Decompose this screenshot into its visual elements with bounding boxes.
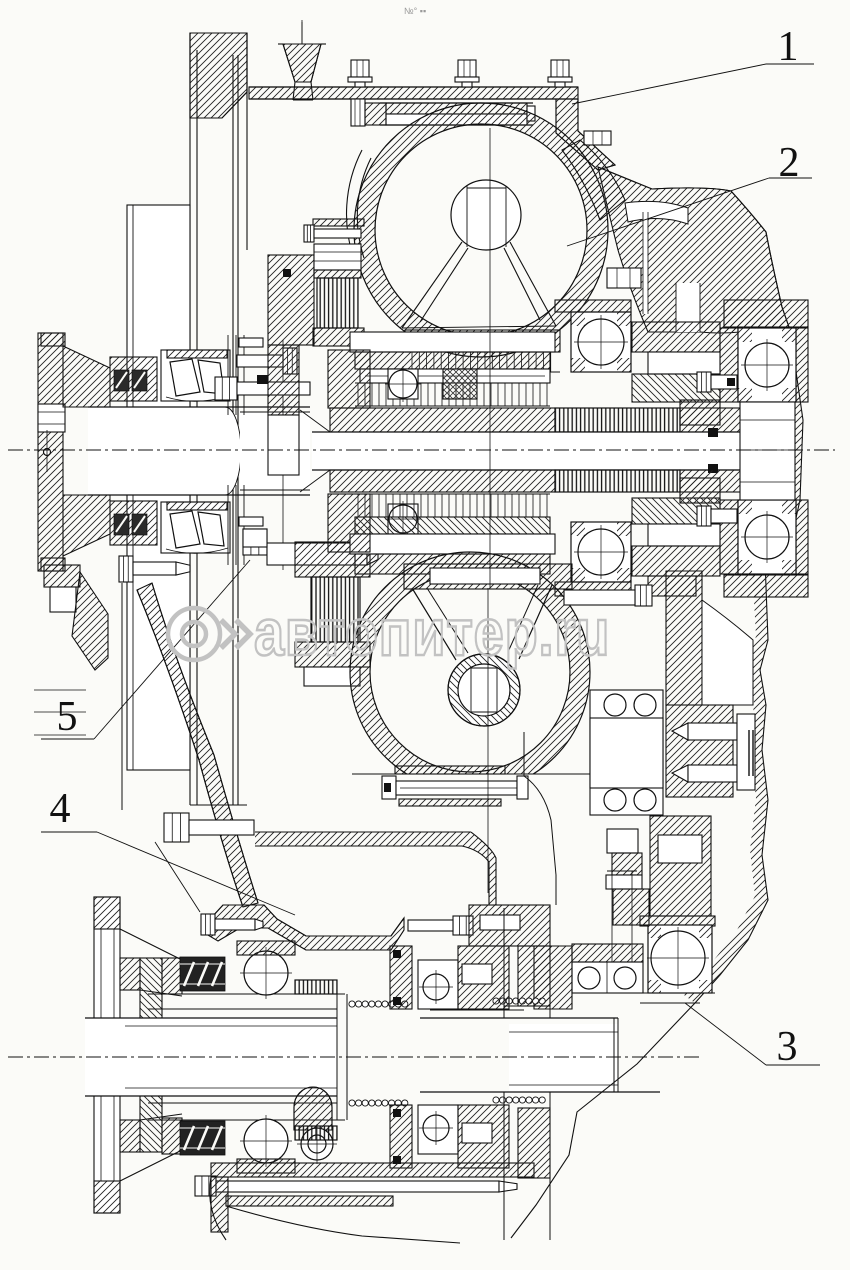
svg-text:автопитер.ru: автопитер.ru: [254, 595, 610, 669]
svg-text:3: 3: [777, 1024, 798, 1070]
svg-text:5: 5: [57, 694, 78, 740]
svg-text:4: 4: [50, 786, 71, 832]
svg-text:№° ▪▪: №° ▪▪: [404, 6, 426, 16]
svg-text:2: 2: [779, 140, 800, 186]
svg-text:1: 1: [778, 24, 799, 70]
